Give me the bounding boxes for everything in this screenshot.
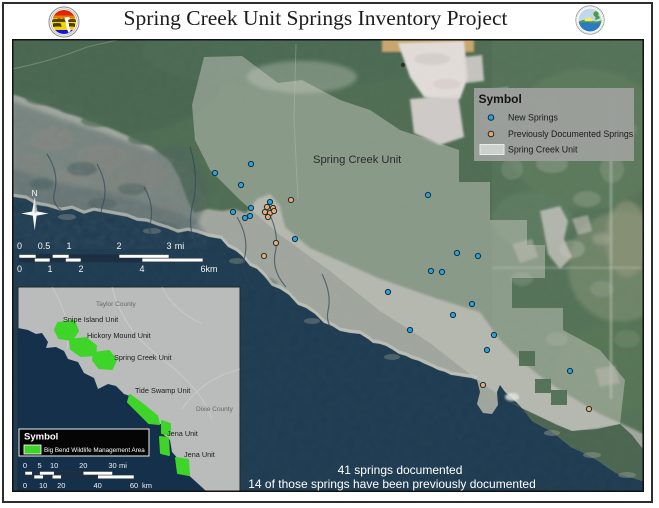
svg-text:Previously Documented Springs: Previously Documented Springs — [508, 129, 634, 139]
svg-text:0: 0 — [17, 241, 22, 251]
svg-text:30: 30 — [108, 461, 116, 470]
svg-text:2: 2 — [78, 264, 83, 274]
svg-text:Symbol: Symbol — [479, 92, 522, 106]
svg-text:20: 20 — [57, 481, 65, 490]
svg-text:14 of those springs have been: 14 of those springs have been previously… — [248, 477, 536, 491]
svg-text:1: 1 — [66, 241, 71, 251]
svg-text:Big Bend Wildlife Management A: Big Bend Wildlife Management Area — [44, 447, 145, 454]
svg-text:0: 0 — [17, 264, 22, 274]
svg-text:New Springs: New Springs — [508, 113, 558, 123]
svg-text:60: 60 — [130, 481, 138, 490]
svg-text:0.5: 0.5 — [38, 241, 51, 251]
svg-text:Dixie County: Dixie County — [196, 406, 234, 413]
svg-text:Spring Creek Unit: Spring Creek Unit — [114, 353, 172, 362]
svg-text:mi: mi — [119, 461, 127, 470]
svg-text:Tide Swamp Unit: Tide Swamp Unit — [135, 386, 190, 395]
svg-text:10: 10 — [39, 481, 47, 490]
svg-text:40: 40 — [94, 481, 102, 490]
svg-text:0: 0 — [23, 481, 27, 490]
svg-text:Spring Creek Unit: Spring Creek Unit — [313, 154, 402, 166]
svg-text:4: 4 — [139, 264, 144, 274]
svg-text:Hickory Mound Unit: Hickory Mound Unit — [87, 331, 151, 340]
svg-text:Symbol: Symbol — [24, 432, 58, 443]
svg-text:41 springs documented: 41 springs documented — [338, 463, 463, 477]
svg-text:1: 1 — [47, 264, 52, 274]
svg-text:Taylor County: Taylor County — [96, 301, 136, 308]
svg-text:km: km — [142, 481, 152, 490]
svg-text:10: 10 — [50, 461, 58, 470]
svg-text:Spring Creek Unit: Spring Creek Unit — [508, 145, 578, 155]
svg-text:2: 2 — [116, 241, 121, 251]
svg-text:km: km — [206, 264, 218, 274]
svg-text:3: 3 — [166, 241, 171, 251]
svg-text:mi: mi — [175, 241, 185, 251]
svg-text:20: 20 — [79, 461, 87, 470]
svg-text:Snipe Island Unit: Snipe Island Unit — [63, 315, 118, 324]
svg-text:Jena Unit: Jena Unit — [184, 450, 215, 459]
svg-text:5: 5 — [38, 461, 42, 470]
svg-text:0: 0 — [23, 461, 27, 470]
svg-text:Jena Unit: Jena Unit — [167, 429, 198, 438]
svg-text:N: N — [32, 188, 38, 198]
